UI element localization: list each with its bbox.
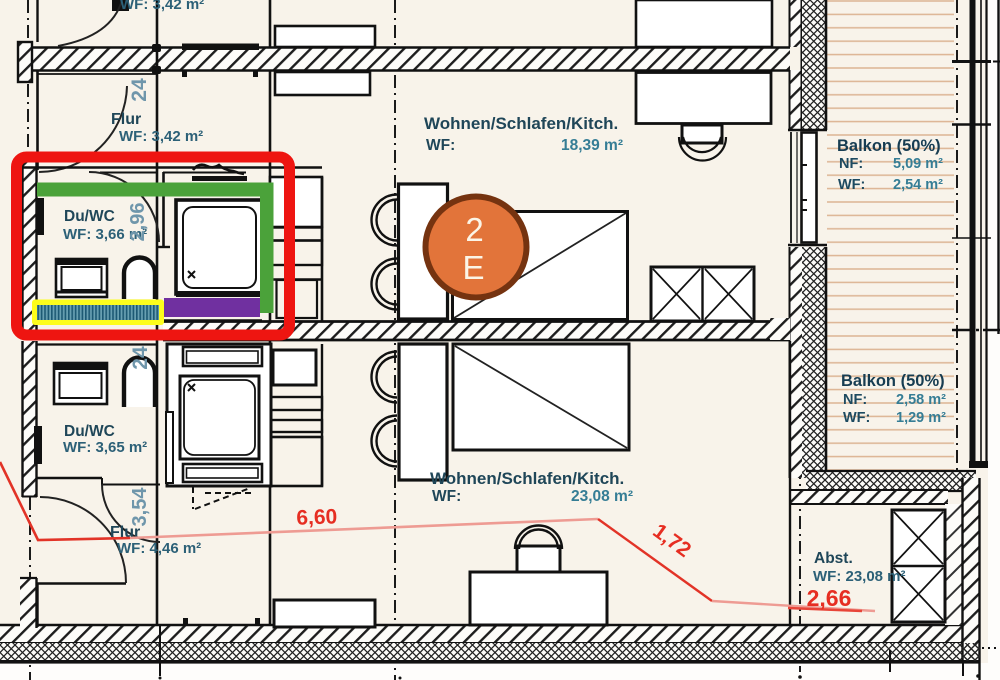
svg-text:Wohnen/Schlafen/Kitch.: Wohnen/Schlafen/Kitch. — [424, 114, 618, 133]
svg-text:2,66: 2,66 — [807, 585, 852, 611]
svg-text:Du/WC: Du/WC — [64, 423, 115, 440]
svg-text:Wohnen/Schlafen/Kitch.: Wohnen/Schlafen/Kitch. — [430, 469, 624, 488]
svg-text:WF:: WF: — [426, 137, 455, 154]
svg-text:Du/WC: Du/WC — [64, 208, 115, 225]
svg-text:2,54 m²: 2,54 m² — [893, 177, 943, 193]
svg-text:Balkon (50%): Balkon (50%) — [837, 137, 941, 155]
svg-text:Flur: Flur — [111, 111, 141, 128]
svg-text:24: 24 — [128, 78, 151, 102]
svg-text:WF:: WF: — [838, 177, 865, 193]
svg-text:WF:: WF: — [432, 488, 461, 505]
svg-text:24: 24 — [129, 346, 152, 370]
svg-text:18,39 m²: 18,39 m² — [561, 137, 623, 154]
svg-text:Balkon (50%): Balkon (50%) — [841, 372, 945, 390]
svg-text:5,09 m²: 5,09 m² — [893, 156, 943, 172]
svg-text:WF: 3,42 m²: WF: 3,42 m² — [119, 128, 203, 145]
svg-text:2: 2 — [465, 211, 483, 248]
svg-text:WF: 3,42 m²: WF: 3,42 m² — [120, 0, 204, 13]
svg-text:2,58 m²: 2,58 m² — [896, 392, 946, 408]
svg-text:WF: 3,65 m²: WF: 3,65 m² — [63, 439, 147, 456]
svg-text:NF:: NF: — [843, 392, 867, 408]
svg-text:WF: 4,46 m²: WF: 4,46 m² — [117, 540, 201, 557]
svg-text:WF: 23,08 m²: WF: 23,08 m² — [813, 568, 906, 585]
svg-text:3,54: 3,54 — [129, 487, 151, 527]
svg-text:6,60: 6,60 — [296, 505, 338, 529]
svg-text:Abst.: Abst. — [814, 550, 853, 567]
svg-text:NF:: NF: — [839, 156, 863, 172]
svg-text:WF:: WF: — [843, 410, 870, 426]
svg-text:E: E — [462, 249, 484, 286]
svg-text:1,29 m²: 1,29 m² — [896, 410, 946, 426]
svg-text:23,08 m²: 23,08 m² — [571, 488, 633, 505]
svg-text:2,96: 2,96 — [127, 203, 149, 242]
